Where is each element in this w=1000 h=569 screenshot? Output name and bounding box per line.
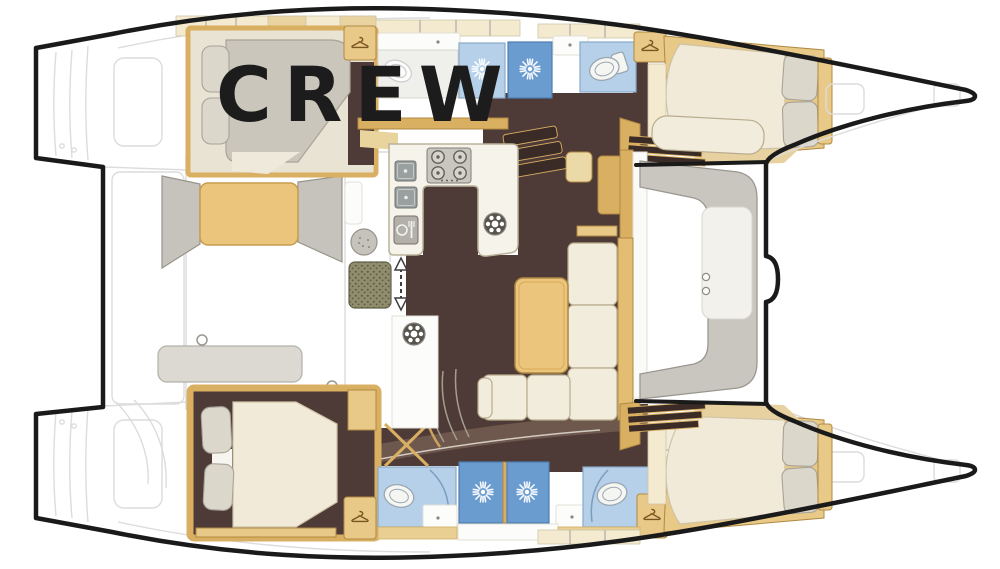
washer-icon xyxy=(351,229,377,255)
shower-head-icon xyxy=(473,482,493,502)
pillow xyxy=(201,406,232,453)
vanity-counter xyxy=(378,33,460,50)
wardrobe xyxy=(634,32,666,62)
starboard-head xyxy=(378,462,667,540)
starboard-aft-cabin xyxy=(190,388,378,539)
salon-table xyxy=(515,278,568,373)
forward-bench xyxy=(651,115,765,155)
bed xyxy=(233,402,337,527)
cockpit-bench xyxy=(158,346,302,382)
fan-vent-icon xyxy=(484,213,506,235)
cup-holder xyxy=(702,273,709,280)
fridge-icon xyxy=(394,216,418,244)
crew-label: CREW xyxy=(216,50,515,139)
hull-steps xyxy=(627,402,707,432)
shower-head-icon xyxy=(517,482,537,502)
fan-vent-icon xyxy=(403,323,425,345)
stove-icon xyxy=(427,148,471,183)
door-mat xyxy=(349,262,391,308)
wardrobe xyxy=(344,497,376,539)
cockpit-door-panel xyxy=(345,182,362,224)
sink-icon xyxy=(395,187,417,208)
shower-head-icon xyxy=(520,59,540,79)
pillow xyxy=(203,463,234,510)
washbasin xyxy=(423,505,457,527)
sink-icon xyxy=(395,161,416,181)
cup-holder xyxy=(702,287,709,294)
catamaran-floor-plan: CREW xyxy=(0,0,1000,569)
deck-ring xyxy=(197,335,207,345)
island-bed xyxy=(666,416,785,524)
cockpit-sunpad xyxy=(200,183,298,245)
